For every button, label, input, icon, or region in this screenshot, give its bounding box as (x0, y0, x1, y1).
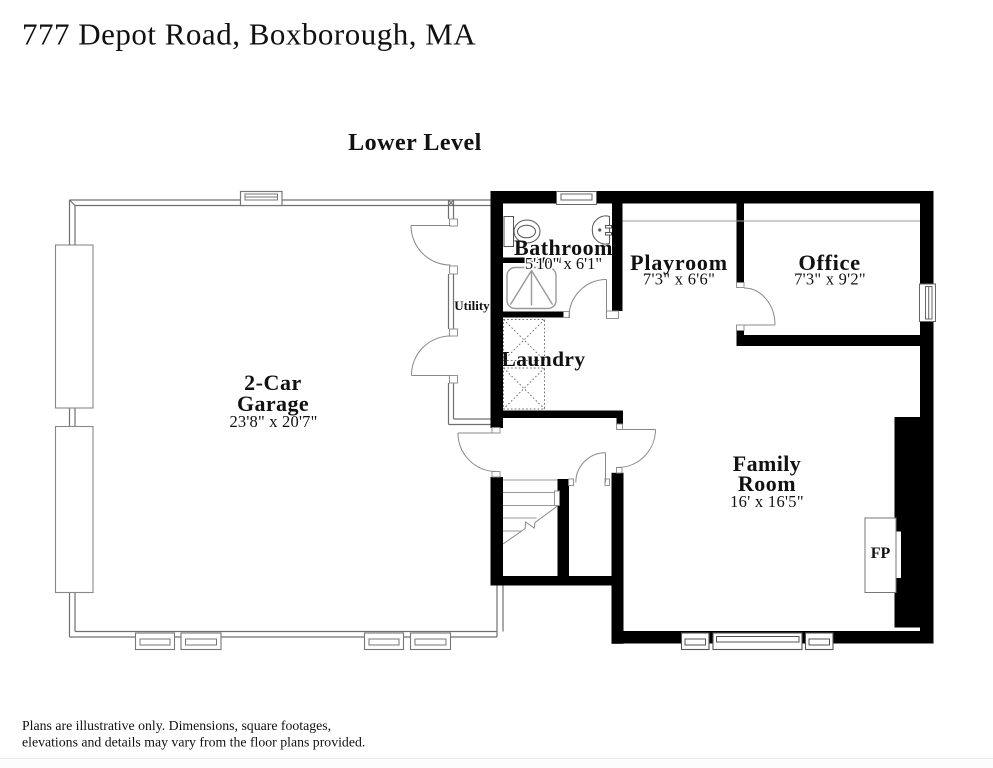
svg-text:5'10" x 6'1": 5'10" x 6'1" (525, 254, 602, 273)
svg-text:7'3" x 9'2": 7'3" x 9'2" (794, 270, 866, 289)
svg-text:16' x 16'5": 16' x 16'5" (730, 492, 804, 511)
svg-text:Plans are illustrative only. D: Plans are illustrative only. Dimensions,… (22, 718, 331, 733)
svg-text:7'3" x 6'6": 7'3" x 6'6" (643, 270, 715, 289)
svg-text:elevations and details may var: elevations and details may vary from the… (22, 735, 365, 750)
svg-text:Lower Level: Lower Level (348, 130, 482, 156)
svg-text:Laundry: Laundry (501, 347, 585, 371)
svg-text:777 Depot Road, Boxborough, MA: 777 Depot Road, Boxborough, MA (22, 17, 476, 52)
svg-text:FP: FP (871, 545, 891, 562)
svg-text:Utility: Utility (454, 298, 490, 313)
svg-text:23'8" x 20'7": 23'8" x 20'7" (229, 412, 317, 431)
